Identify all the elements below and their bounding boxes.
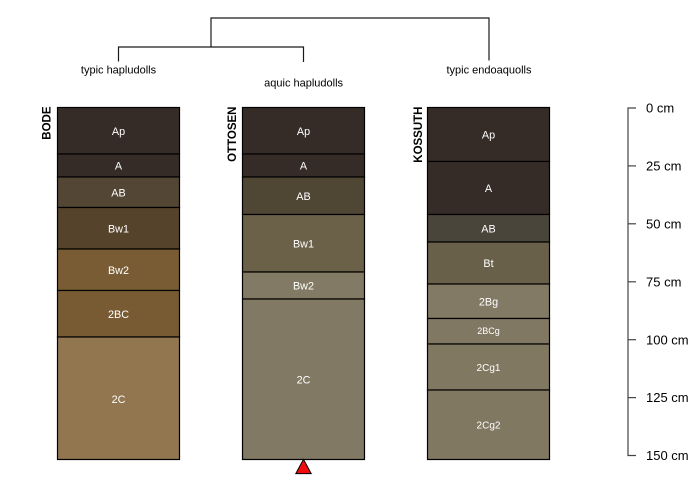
svg-text:100 cm: 100 cm <box>646 332 689 347</box>
svg-text:aquic hapludolls: aquic hapludolls <box>264 78 343 90</box>
svg-text:A: A <box>485 183 493 195</box>
svg-text:A: A <box>115 161 123 173</box>
svg-text:0 cm: 0 cm <box>646 101 674 116</box>
svg-text:Bw2: Bw2 <box>293 281 314 293</box>
svg-text:50 cm: 50 cm <box>646 216 681 231</box>
svg-text:2C: 2C <box>112 394 126 406</box>
svg-text:AB: AB <box>296 191 310 203</box>
svg-text:BODE: BODE <box>42 106 54 140</box>
svg-text:75 cm: 75 cm <box>646 274 681 289</box>
svg-text:25 cm: 25 cm <box>646 159 681 174</box>
svg-text:A: A <box>300 161 308 173</box>
svg-text:Bw1: Bw1 <box>293 239 314 251</box>
svg-text:Bw2: Bw2 <box>108 265 129 277</box>
svg-text:typic endoaquolls: typic endoaquolls <box>446 65 532 77</box>
svg-text:Ap: Ap <box>297 126 310 138</box>
svg-text:OTTOSEN: OTTOSEN <box>227 107 239 162</box>
svg-text:typic hapludolls: typic hapludolls <box>81 64 157 76</box>
svg-text:Ap: Ap <box>482 130 495 142</box>
svg-text:2Cg2: 2Cg2 <box>477 421 501 432</box>
svg-text:2BC: 2BC <box>108 309 129 321</box>
svg-text:125 cm: 125 cm <box>646 390 689 405</box>
svg-text:150 cm: 150 cm <box>646 448 689 463</box>
svg-text:KOSSUTH: KOSSUTH <box>413 107 425 163</box>
svg-text:Bt: Bt <box>483 258 493 270</box>
svg-text:Ap: Ap <box>112 126 125 138</box>
svg-text:2Bg: 2Bg <box>479 296 498 308</box>
svg-text:2C: 2C <box>297 375 311 387</box>
svg-text:2Cg1: 2Cg1 <box>477 363 501 374</box>
svg-text:AB: AB <box>111 187 125 199</box>
svg-text:AB: AB <box>481 223 495 235</box>
svg-text:Bw1: Bw1 <box>108 223 129 235</box>
svg-text:2BCg: 2BCg <box>477 326 500 336</box>
